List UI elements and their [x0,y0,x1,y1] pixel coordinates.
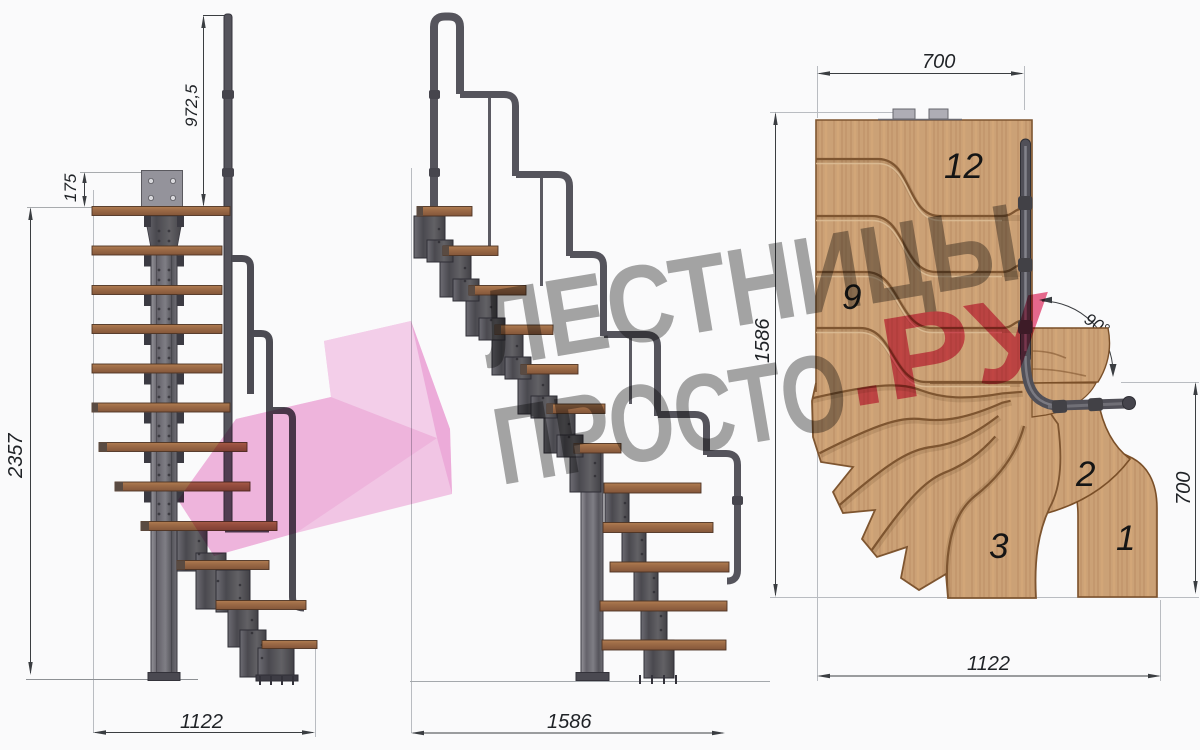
svg-text:1122: 1122 [180,711,223,733]
svg-text:2: 2 [1075,455,1095,494]
svg-text:12: 12 [944,147,983,186]
svg-text:175: 175 [61,173,80,202]
svg-text:1122: 1122 [967,653,1010,675]
svg-text:1: 1 [1116,519,1135,558]
svg-text:700: 700 [1173,472,1195,505]
svg-text:972,5: 972,5 [182,84,201,127]
svg-text:3: 3 [989,527,1009,566]
svg-text:2357: 2357 [5,433,27,479]
svg-text:700: 700 [922,51,955,73]
svg-text:1586: 1586 [547,711,592,733]
